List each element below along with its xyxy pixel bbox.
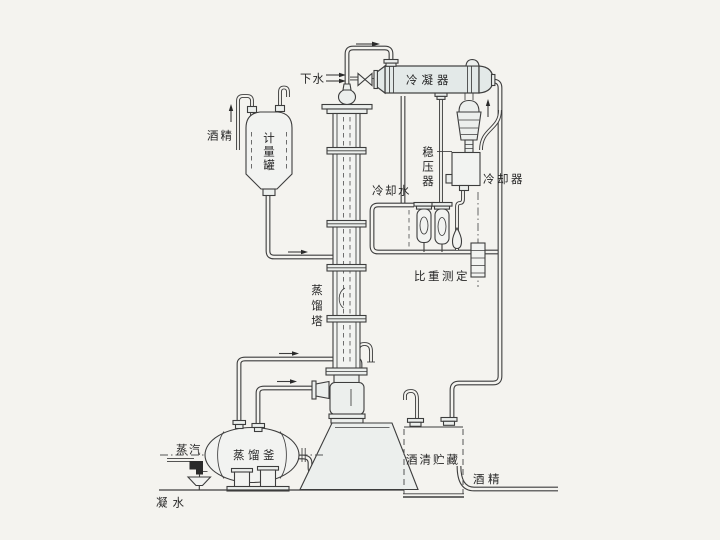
label-steam: 蒸汽 <box>176 443 202 457</box>
column-top-ball <box>339 90 356 105</box>
label-condenser: 冷凝器 <box>406 73 453 87</box>
kettle-support <box>261 470 276 488</box>
label-condensate: 凝水 <box>156 496 189 510</box>
label-measuring-tank: 计量罐 <box>263 132 275 172</box>
cooler-box <box>452 153 480 186</box>
label-cooler: 冷却器 <box>483 173 525 186</box>
label-gravity-measurement: 比重测定 <box>414 269 470 283</box>
column-top-cap <box>343 84 351 90</box>
label-alcohol-out: 酒精 <box>473 473 503 486</box>
label-alcohol-feed: 酒精 <box>207 130 234 143</box>
diagram-canvas: 下水 冷凝器 酒精 计量罐 稳压器 冷却水 冷却器 比重测定 蒸馏塔 蒸馏釜 蒸… <box>0 0 720 540</box>
label-distillation-kettle: 蒸馏釜 <box>233 448 278 462</box>
hydrometer-cell-2 <box>435 209 449 244</box>
kettle-support <box>235 472 250 488</box>
label-pressure-stabilizer: 稳压器 <box>422 145 434 188</box>
label-alcohol-storage: 酒清贮藏 <box>406 453 460 467</box>
label-distillation-column: 蒸馏塔 <box>311 284 323 328</box>
feed-cone-fitting <box>316 382 329 399</box>
process-flow-diagram: 下水 冷凝器 酒精 计量罐 稳压器 冷却水 冷却器 比重测定 蒸馏塔 蒸馏釜 蒸… <box>0 0 720 540</box>
separator-cone <box>457 112 481 140</box>
label-cooling-water: 冷却水 <box>372 185 411 198</box>
column-bottom-bulb <box>330 383 364 415</box>
label-drain-water: 下水 <box>300 73 325 86</box>
sight-gauge <box>471 243 485 277</box>
hydrometer-cell-1 <box>417 209 431 243</box>
